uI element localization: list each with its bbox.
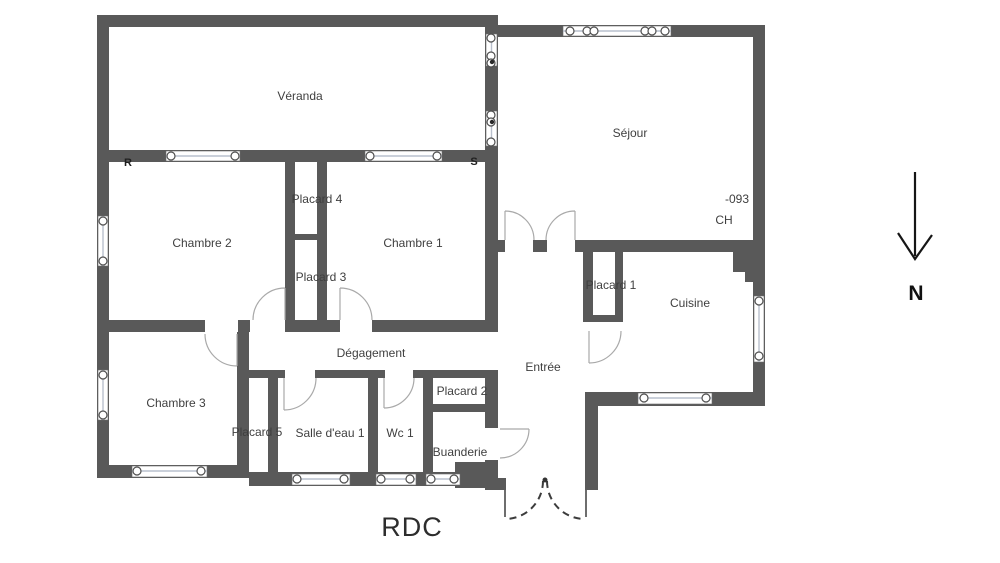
window-cuisine-right bbox=[754, 296, 764, 362]
wall-sejour-bottom-seg3 bbox=[575, 240, 765, 252]
door-chambre3 bbox=[205, 334, 237, 366]
mark-s-label: S bbox=[470, 156, 477, 168]
room-label-salledeau1: Salle d'eau 1 bbox=[295, 426, 364, 440]
room-label-degagement: Dégagement bbox=[337, 346, 406, 360]
wall-placard1-bottom bbox=[583, 315, 623, 322]
north-label: N bbox=[908, 282, 923, 305]
wall-veranda-top bbox=[97, 15, 492, 27]
wall-corridor-bottom-seg1 bbox=[237, 370, 285, 378]
room-label-wc1: Wc 1 bbox=[386, 426, 414, 440]
wall-mid-horizontal-seg2 bbox=[238, 320, 250, 332]
wall-cuisine-notch-step bbox=[745, 270, 765, 282]
window-veranda-bottom-1 bbox=[166, 151, 240, 161]
switch-mark-1 bbox=[490, 60, 494, 64]
wall-cuisine-notch bbox=[733, 252, 765, 272]
door-sejour-double-left bbox=[505, 211, 534, 240]
window-chambre3-bottom bbox=[132, 466, 207, 477]
room-label-placard2: Placard 2 bbox=[437, 384, 488, 398]
room-label-chambre3: Chambre 3 bbox=[146, 396, 206, 410]
room-label-sejour: Séjour bbox=[613, 126, 648, 140]
wall-corridor-bottom-seg3 bbox=[413, 370, 497, 378]
door-buanderie bbox=[500, 429, 529, 458]
wall-mid-horizontal-seg1 bbox=[97, 320, 205, 332]
window-cuisine-bottom bbox=[638, 393, 712, 404]
window-veranda-sejour-2 bbox=[486, 111, 497, 146]
wall-entrance-left-jamb bbox=[498, 478, 506, 490]
door-cuisine bbox=[589, 331, 621, 363]
wall-placard-divider bbox=[295, 234, 317, 240]
entrance-door-right-swing bbox=[547, 481, 585, 519]
window-chambre3-left bbox=[98, 370, 108, 420]
floor-plan-drawing: Véranda Séjour Chambre 2 Chambre 1 Placa… bbox=[0, 0, 1000, 563]
door-salledeau bbox=[284, 378, 316, 410]
room-label-cuisine: Cuisine bbox=[670, 296, 710, 310]
wall-entree-right-lower bbox=[585, 392, 598, 490]
wall-center-vertical-mid bbox=[485, 370, 498, 428]
walls bbox=[97, 15, 765, 490]
room-label-placard4: Placard 4 bbox=[292, 192, 343, 206]
wall-salledeau-right bbox=[368, 378, 378, 472]
wall-mid-horizontal-seg4 bbox=[372, 320, 497, 332]
room-label-placard3: Placard 3 bbox=[296, 270, 347, 284]
window-salledeau-bottom bbox=[292, 474, 350, 485]
room-label-placard1: Placard 1 bbox=[586, 278, 637, 292]
window-buanderie-bottom bbox=[426, 474, 460, 485]
wall-placard-column-left bbox=[285, 162, 295, 332]
wall-veranda-left bbox=[97, 15, 109, 162]
door-chambre2 bbox=[253, 288, 285, 320]
wall-placard-column-right bbox=[317, 162, 327, 332]
window-sejour-top bbox=[563, 26, 671, 36]
door-sejour-double-right bbox=[546, 211, 575, 240]
room-label-buanderie: Buanderie bbox=[433, 445, 488, 459]
wall-sejour-bottom-seg2 bbox=[533, 240, 547, 252]
wall-wetrooms-bottom bbox=[249, 472, 498, 486]
window-chambre2-left bbox=[98, 216, 108, 266]
room-label-entree: Entrée bbox=[525, 360, 561, 374]
door-wc bbox=[384, 378, 414, 408]
mark-r-label: R bbox=[124, 157, 132, 169]
switch-mark-2 bbox=[490, 120, 494, 124]
ch-label: CH bbox=[715, 213, 732, 227]
room-label-chambre2: Chambre 2 bbox=[172, 236, 232, 250]
north-compass: N bbox=[898, 172, 932, 305]
wall-wc-right bbox=[423, 378, 433, 472]
room-label-placard5: Placard 5 bbox=[232, 425, 283, 439]
entrance-door-left-swing bbox=[505, 481, 543, 519]
wall-sejour-bottom-seg1 bbox=[485, 240, 505, 252]
wall-corridor-bottom-seg2 bbox=[315, 370, 385, 378]
window-veranda-bottom-2 bbox=[365, 151, 442, 161]
room-label-chambre1: Chambre 1 bbox=[383, 236, 443, 250]
doors bbox=[205, 60, 621, 519]
floor-title: RDC bbox=[381, 512, 443, 542]
room-label-veranda: Véranda bbox=[277, 89, 323, 103]
entrance-door-pivot bbox=[543, 478, 548, 483]
window-wc-bottom bbox=[376, 474, 416, 485]
door-chambre1 bbox=[340, 288, 372, 320]
wall-chambre3-right bbox=[237, 332, 249, 478]
floor-plan-page: Véranda Séjour Chambre 2 Chambre 1 Placa… bbox=[0, 0, 1000, 563]
ref-number-label: -093 bbox=[725, 192, 749, 206]
wall-placard2-bottom bbox=[433, 404, 497, 412]
